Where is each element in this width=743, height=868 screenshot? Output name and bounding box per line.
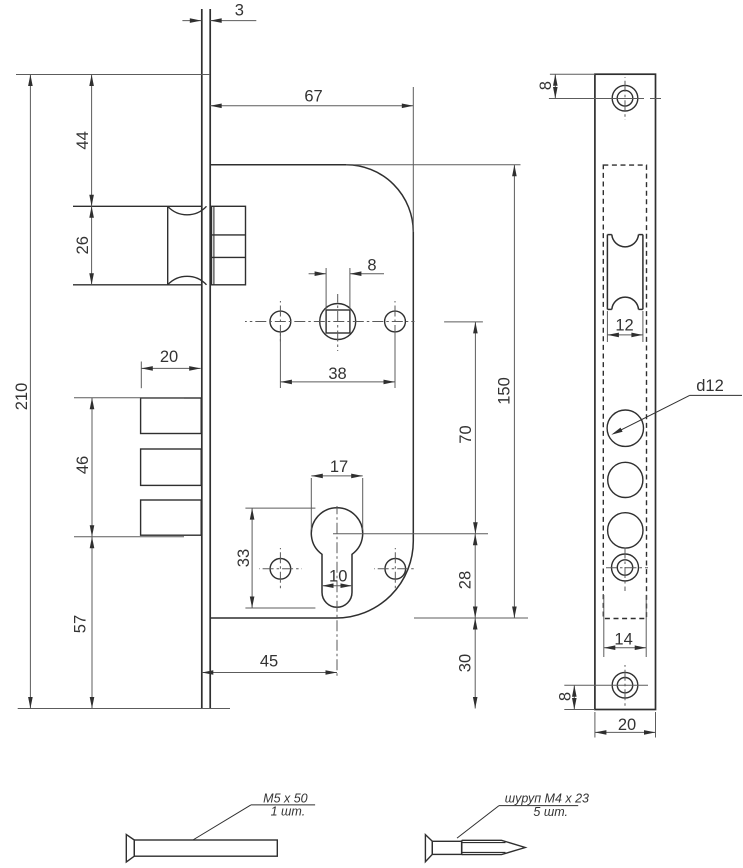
svg-text:38: 38 xyxy=(328,365,346,383)
svg-text:44: 44 xyxy=(74,131,92,149)
svg-text:210: 210 xyxy=(13,383,31,411)
svg-text:M5 x 50: M5 x 50 xyxy=(263,791,308,805)
svg-text:17: 17 xyxy=(330,458,348,476)
svg-text:8: 8 xyxy=(367,257,376,275)
svg-text:10: 10 xyxy=(329,567,347,585)
svg-text:28: 28 xyxy=(457,571,475,589)
svg-text:150: 150 xyxy=(496,377,514,405)
svg-text:3: 3 xyxy=(235,2,244,20)
svg-text:8: 8 xyxy=(537,81,555,90)
svg-text:шуруп M4 x 23: шуруп M4 x 23 xyxy=(505,792,589,806)
svg-text:14: 14 xyxy=(614,630,632,648)
svg-text:20: 20 xyxy=(618,716,636,734)
svg-text:70: 70 xyxy=(457,425,475,443)
svg-text:5 шт.: 5 шт. xyxy=(533,805,568,819)
svg-text:57: 57 xyxy=(72,615,90,633)
svg-text:1 шт.: 1 шт. xyxy=(271,805,306,819)
svg-text:8: 8 xyxy=(557,692,575,701)
svg-text:46: 46 xyxy=(74,456,92,474)
svg-text:26: 26 xyxy=(74,236,92,254)
svg-text:33: 33 xyxy=(235,549,253,567)
svg-text:20: 20 xyxy=(160,348,178,366)
svg-text:d12: d12 xyxy=(696,377,724,395)
svg-text:30: 30 xyxy=(457,654,475,672)
svg-text:45: 45 xyxy=(260,653,278,671)
svg-text:67: 67 xyxy=(304,88,322,106)
svg-text:12: 12 xyxy=(615,317,633,335)
